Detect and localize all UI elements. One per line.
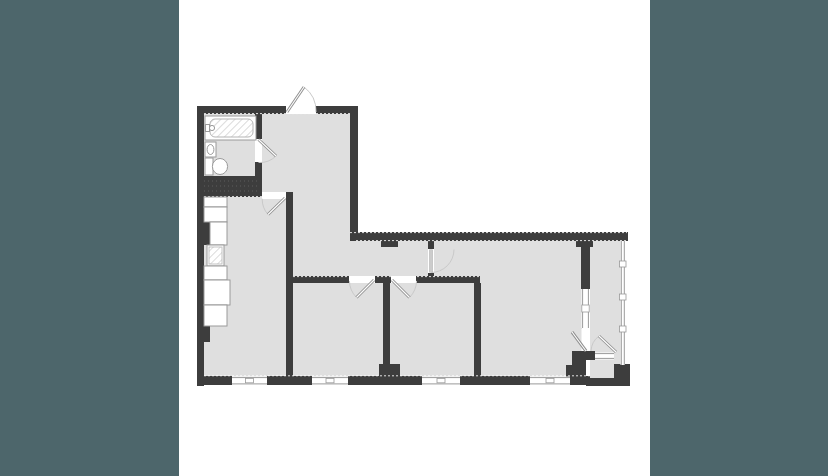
bottom-wall-3 [348,376,422,385]
bathtub [205,116,256,140]
room-corridor [293,240,428,278]
room-bedroom-1 [293,282,383,377]
room-living [434,240,582,377]
left-wall [197,106,204,386]
corridor-pier [381,241,398,247]
balcony-door-pier [585,351,595,360]
kitchen-partition-wall [286,192,293,377]
living-right-wall [581,235,590,289]
kitchen-window [232,377,267,386]
bottom-wall-right [586,378,630,386]
living-room-side-window [582,289,590,328]
toilet [205,158,228,175]
bedroom-2-window [422,377,460,386]
floor-plan-canvas [0,0,828,476]
bottom-wall-2 [267,376,312,385]
bedroom2-right-wall [474,283,481,377]
washbasin [205,142,216,157]
bottom-wall-4 [460,376,530,385]
balcony-corner-block [614,364,630,379]
bedroom-divider-pier [379,364,400,377]
bedroom-divider-wall [383,283,390,366]
living-room-window [530,377,570,386]
top-wall-left [197,106,286,114]
left-wall-pier-2 [197,326,210,342]
left-wall-pier-1 [197,222,210,245]
living-left-wall-upper [428,241,434,249]
bedroom-1-window [312,377,348,386]
bathtub-faucet-icon [209,125,214,130]
bathroom-wall-lower [255,162,262,178]
floor-plan-page [0,0,828,476]
bottom-wall-1 [197,376,232,385]
hall-right-wall [350,106,358,233]
kitchen-sink [207,245,224,266]
